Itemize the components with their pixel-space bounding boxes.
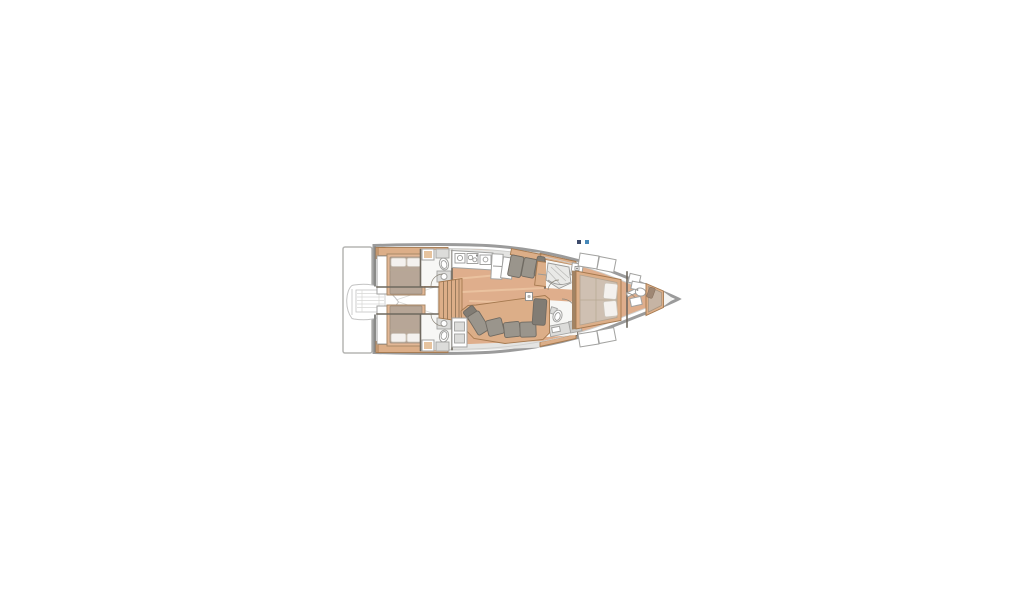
tiny-marker-left	[577, 240, 581, 244]
pillow	[603, 300, 618, 317]
bow-berth	[646, 284, 664, 316]
wardrobe	[377, 306, 387, 344]
bed-footboard	[572, 271, 576, 330]
deck-hatch	[436, 249, 449, 258]
wardrobe-starboard	[597, 327, 616, 343]
locker-shelf	[424, 342, 432, 349]
pillow	[391, 334, 406, 343]
pillow	[391, 258, 406, 267]
pillow	[603, 283, 618, 300]
owner-bed	[572, 271, 621, 330]
wardrobe-port	[597, 256, 616, 272]
cabinet	[630, 296, 642, 306]
floorplan-canvas	[0, 0, 1024, 600]
locker-shelf	[424, 251, 432, 258]
yacht-floorplan	[0, 0, 1024, 600]
double-bed	[387, 305, 425, 346]
wardrobe-starboard	[578, 331, 599, 347]
sink	[552, 326, 561, 332]
galley-stove	[467, 254, 478, 264]
sofa-cushion	[503, 321, 520, 338]
deck-hatch	[436, 342, 449, 351]
wardrobe-port	[578, 253, 599, 269]
mast-foot	[526, 293, 533, 301]
sofa-back-cushion	[532, 299, 547, 326]
salon-cabinet	[452, 318, 467, 347]
sofa-cushion	[485, 317, 504, 336]
companionway-stairs	[439, 279, 462, 322]
pillow	[407, 258, 421, 267]
sink	[441, 274, 447, 280]
double-bed	[387, 254, 425, 295]
wardrobe	[377, 256, 387, 294]
sink	[441, 321, 447, 327]
galley-oven	[455, 254, 465, 264]
tiny-marker-right	[585, 240, 589, 244]
galley-sink	[480, 255, 491, 265]
pillow	[407, 334, 421, 343]
